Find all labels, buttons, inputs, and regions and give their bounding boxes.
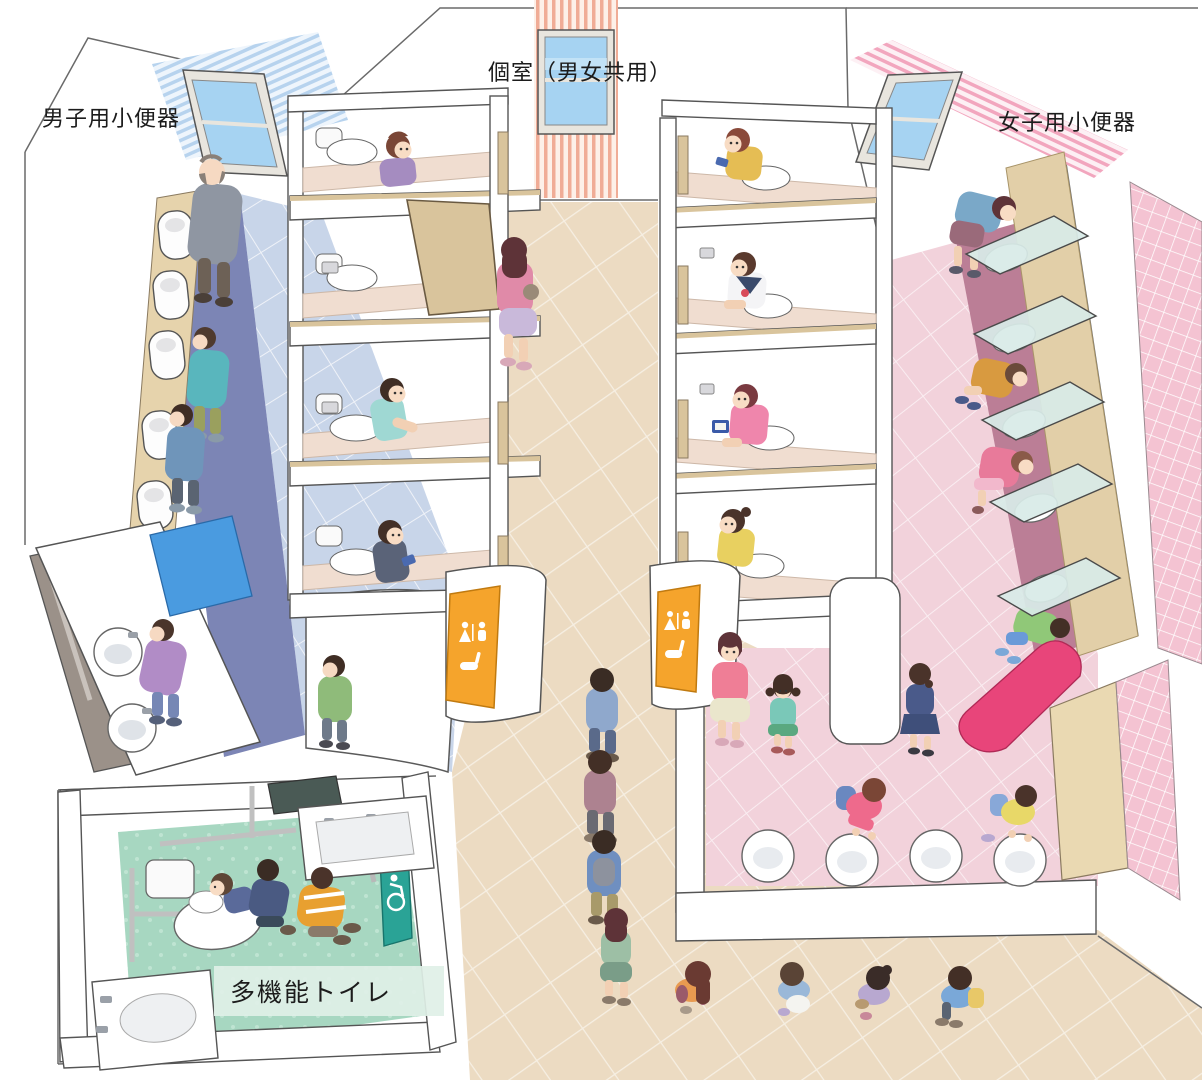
scene-svg: 男子用小便器 個室（男女共用） 女子用小便器 多機能トイレ bbox=[0, 0, 1202, 1080]
right-stall-row bbox=[662, 100, 892, 640]
restroom-illustration: 男子用小便器 個室（男女共用） 女子用小便器 多機能トイレ bbox=[0, 0, 1202, 1080]
wash-basin bbox=[94, 628, 142, 676]
girl-in-stall-1 bbox=[379, 132, 418, 188]
stall-door-edge bbox=[678, 400, 688, 458]
unisex-toilet-sign bbox=[656, 585, 700, 692]
wood-partition bbox=[1050, 682, 1128, 880]
label-boys-urinals: 男子用小便器 bbox=[42, 106, 180, 131]
stall-door-edge bbox=[678, 136, 688, 194]
wall-column bbox=[830, 578, 900, 744]
stall-door-edge bbox=[498, 132, 508, 194]
unisex-toilet-sign bbox=[446, 586, 500, 708]
label-shared-stalls: 個室（男女共用） bbox=[488, 60, 672, 85]
tp-holder bbox=[322, 402, 338, 413]
stall-toilet bbox=[316, 128, 377, 165]
right-wainscot-upper bbox=[1130, 182, 1202, 664]
low-wall-left bbox=[676, 688, 704, 912]
tp-holder bbox=[322, 262, 338, 273]
girl-in-stall-reading bbox=[712, 384, 770, 447]
stall-door-edge bbox=[498, 402, 508, 464]
stall-door-edge bbox=[678, 266, 688, 324]
right-stall-front-wall bbox=[660, 118, 688, 620]
room-left-wall bbox=[58, 790, 88, 1062]
label-girls-urinals: 女子用小便器 bbox=[998, 110, 1136, 135]
girl-in-stall-ponytail bbox=[716, 507, 756, 568]
wash-basin bbox=[108, 704, 156, 752]
left-row-end-pillar bbox=[446, 566, 546, 723]
label-multifunction-toilet: 多機能トイレ bbox=[230, 979, 392, 1007]
girl-in-stall-uniform bbox=[724, 252, 767, 309]
tp-holder bbox=[700, 384, 714, 394]
girl-in-stall-phone bbox=[715, 128, 764, 182]
tp-holder bbox=[700, 248, 714, 258]
corner-sink bbox=[92, 970, 218, 1070]
